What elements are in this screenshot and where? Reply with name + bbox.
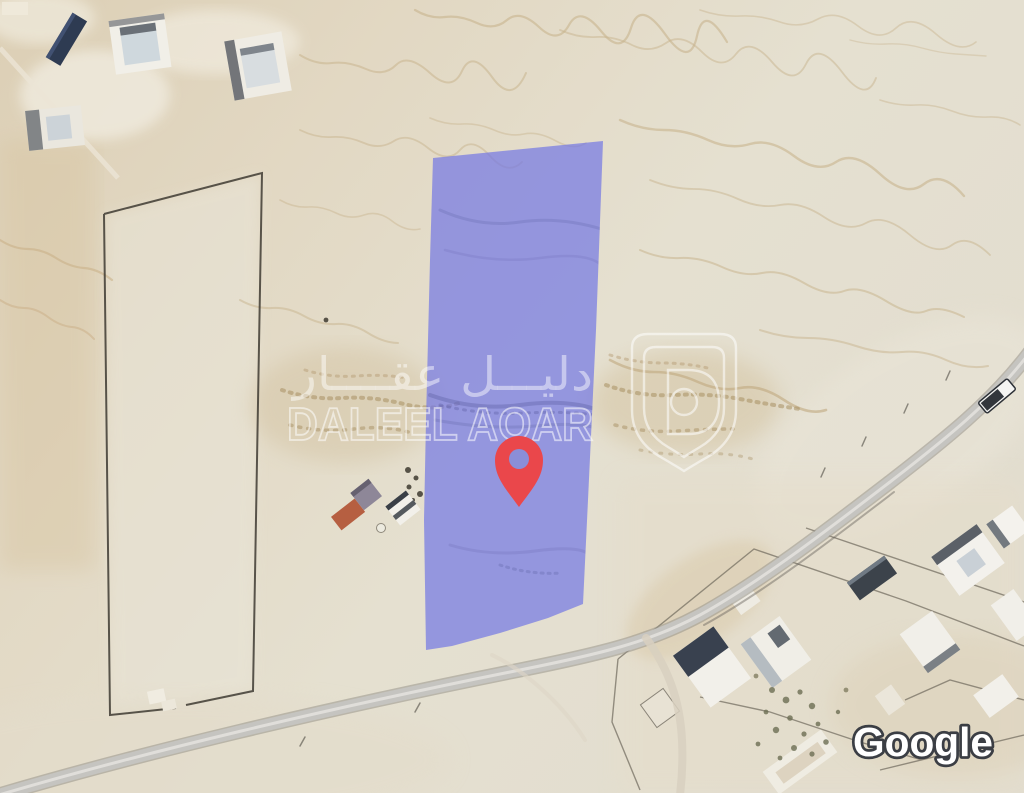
watermark-latin-text: DALEEL AQAR <box>287 398 593 450</box>
map-canvas[interactable]: دليـــل عقــــار DALEEL AQAR Google <box>0 0 1024 793</box>
google-logo[interactable]: Google <box>853 719 993 765</box>
watermark-arabic-text: دليـــل عقــــار <box>291 347 593 401</box>
pin-hole <box>509 449 529 469</box>
